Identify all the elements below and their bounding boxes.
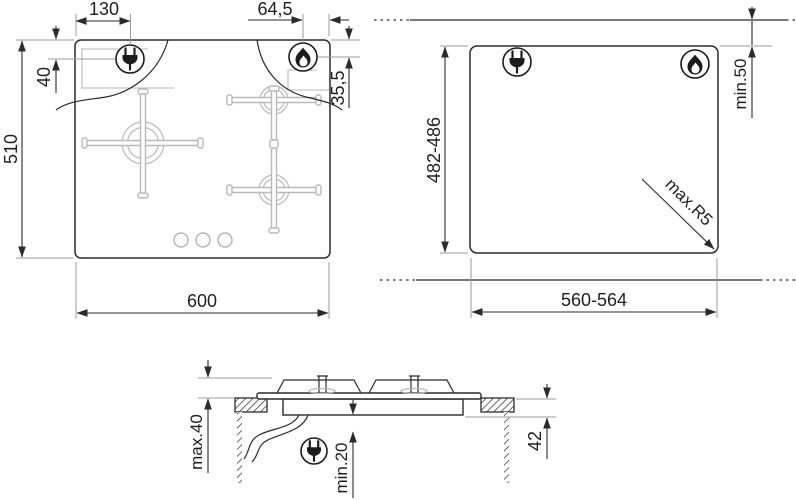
pan-support-post	[317, 376, 328, 393]
power-plug-icon	[301, 438, 327, 464]
cutout-view: 482-486 min.50 max.R5 560-564	[374, 7, 796, 318]
cabinet-wall-right	[504, 412, 509, 483]
dim-label: 560-564	[561, 290, 627, 310]
arm-cap	[227, 185, 232, 195]
hob-body-profile	[283, 399, 463, 415]
dim-cutout-width: 560-564	[471, 258, 717, 318]
installation-diagram: 130 64,5 40 35,5 510	[0, 0, 796, 500]
gas-flame-icon	[681, 50, 709, 78]
arm-cap	[198, 138, 203, 148]
arm-cap	[138, 193, 148, 198]
arm-cap	[82, 138, 87, 148]
control-knobs	[174, 233, 232, 247]
dim-hob-width: 600	[76, 262, 329, 319]
cabinet-wall-left	[237, 412, 242, 483]
hob-outline	[75, 40, 330, 258]
hob-glass-profile	[257, 393, 481, 399]
pan-support-arm	[272, 148, 277, 230]
burner-profile-right	[369, 376, 454, 394]
cable-line	[252, 415, 308, 462]
dim-height-above-worktop: max.40	[187, 360, 272, 473]
burner-profile-left	[277, 376, 361, 394]
knob	[218, 233, 232, 247]
dim-label: 482-486	[424, 117, 444, 183]
dim-label: min.20	[332, 442, 351, 493]
dim-flame-to-right-edge: 64,5	[248, 0, 349, 43]
worktop-section-left	[235, 398, 267, 412]
worktop-section-right	[481, 398, 514, 412]
power-plug-icon	[503, 48, 531, 76]
cutout-outline	[470, 46, 718, 253]
power-plug-icon	[116, 45, 144, 73]
dim-label: 510	[1, 134, 21, 164]
dim-label: 600	[187, 291, 217, 311]
knob	[174, 233, 188, 247]
dim-left-edge-to-plug: 130	[76, 0, 131, 45]
dim-label: max.40	[187, 414, 206, 470]
section-view: max.40 min.20 42	[187, 360, 556, 498]
knob	[196, 233, 210, 247]
dim-label: 42	[525, 431, 545, 451]
dim-label: 40	[34, 67, 54, 87]
power-cable	[244, 415, 308, 462]
dim-rear-clearance: min.50	[720, 7, 772, 118]
dim-label: 130	[89, 0, 119, 19]
pan-support-arm	[141, 92, 146, 195]
cable-line	[244, 415, 299, 459]
dim-label: min.50	[731, 58, 750, 109]
dim-label: 35,5	[328, 70, 348, 105]
dim-cutout-depth: 482-486	[424, 46, 468, 253]
arm-cap	[138, 89, 148, 94]
gas-flame-icon	[289, 43, 317, 71]
arm-cap	[316, 185, 321, 195]
hob-top-view: 130 64,5 40 35,5 510	[1, 0, 360, 319]
pan-support-arm	[272, 88, 277, 140]
pan-support-post	[409, 376, 420, 393]
ext-line	[440, 46, 468, 253]
arm-cap	[269, 86, 279, 91]
support-joint	[270, 140, 278, 148]
installation-diagram-page: 130 64,5 40 35,5 510	[0, 0, 796, 500]
ext-line	[303, 14, 329, 43]
dim-label: 64,5	[257, 0, 292, 19]
arm-cap	[227, 95, 232, 105]
arm-cap	[269, 228, 279, 233]
